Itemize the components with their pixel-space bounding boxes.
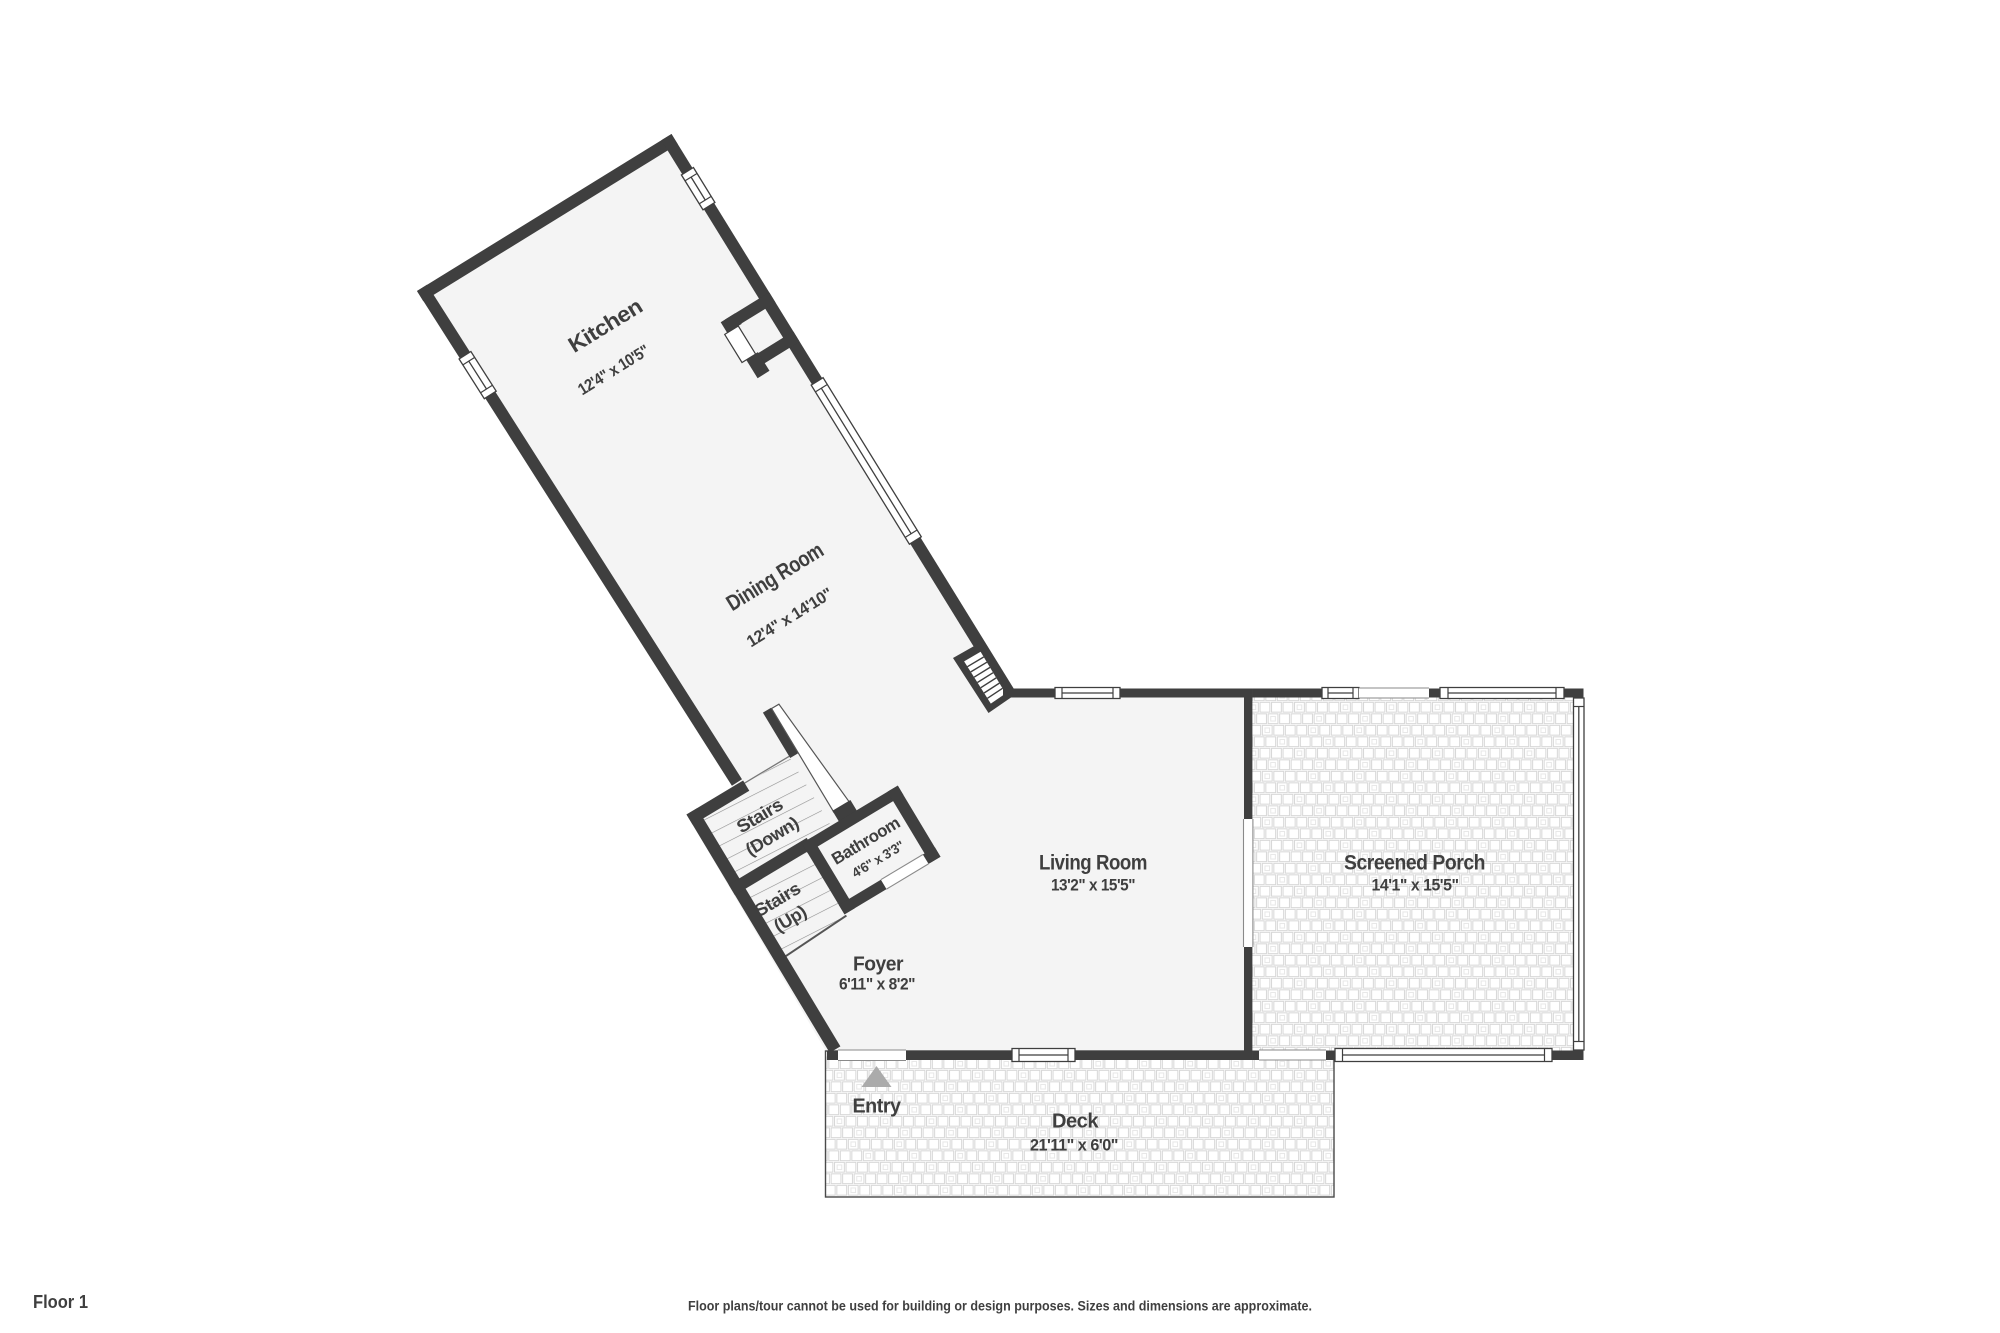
svg-text:Screened Porch: Screened Porch [1344,852,1485,875]
svg-text:Living Room: Living Room [1039,852,1147,875]
svg-text:Entry: Entry [853,1095,902,1117]
svg-text:Foyer: Foyer [853,953,904,975]
svg-text:6'11" x 8'2": 6'11" x 8'2" [839,975,915,993]
svg-text:14'1" x 15'5": 14'1" x 15'5" [1372,876,1459,894]
svg-text:21'11" x 6'0": 21'11" x 6'0" [1030,1136,1118,1154]
svg-text:Floor 1: Floor 1 [33,1292,88,1312]
svg-text:Floor plans/tour cannot be use: Floor plans/tour cannot be used for buil… [688,1298,1312,1314]
svg-text:13'2" x 15'5": 13'2" x 15'5" [1051,876,1135,894]
svg-text:Deck: Deck [1052,1110,1099,1132]
